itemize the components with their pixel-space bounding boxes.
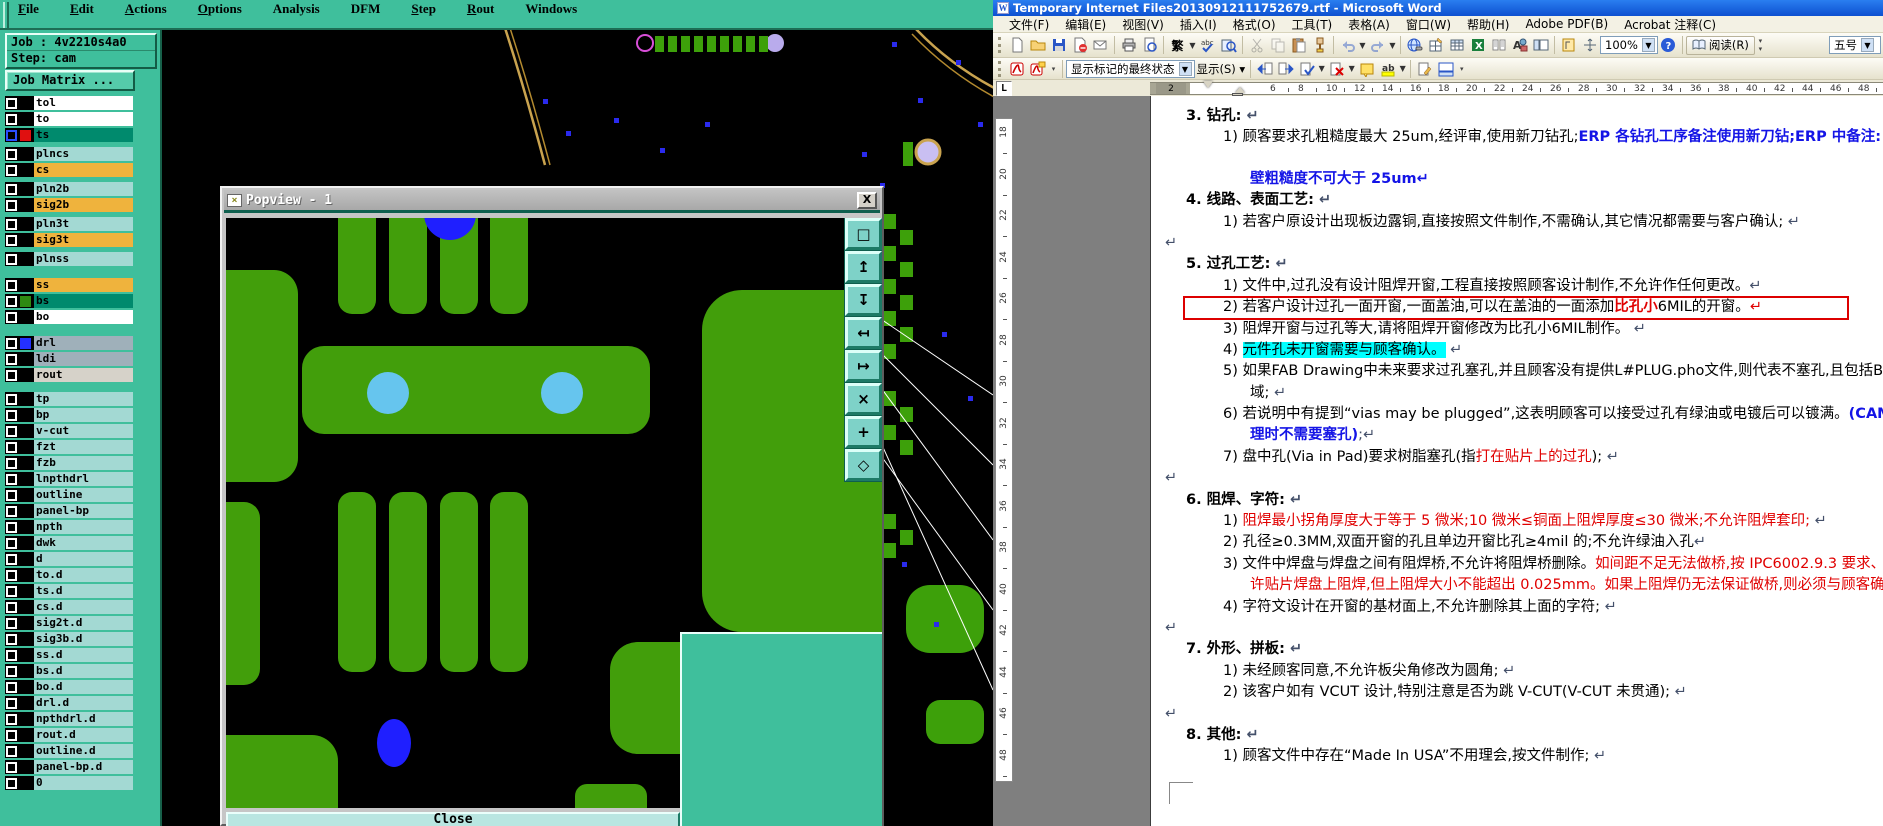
layer-name[interactable]: panel-bp.d bbox=[34, 760, 133, 774]
reviewing-pane-icon[interactable] bbox=[1435, 59, 1456, 79]
undo-icon[interactable] bbox=[1337, 35, 1358, 55]
layer-checkbox[interactable] bbox=[6, 570, 17, 581]
doc-text-run: 1) 顾客文件中存在“Made In USA”不用理会,按文件制作; bbox=[1223, 748, 1589, 764]
layer-row-rout.d[interactable]: rout.d bbox=[5, 728, 133, 742]
layer-row-bs[interactable]: bs bbox=[5, 294, 133, 308]
format-painter-icon[interactable] bbox=[1309, 35, 1330, 55]
layer-checkbox[interactable] bbox=[6, 200, 17, 211]
display-for-review-combobox[interactable]: 显示标记的最终状态▼ bbox=[1066, 60, 1195, 78]
layer-checkbox[interactable] bbox=[6, 354, 17, 365]
insert-comment-icon[interactable] bbox=[1356, 59, 1377, 79]
layer-name[interactable]: panel-bp bbox=[34, 504, 133, 518]
layer-checkbox[interactable] bbox=[6, 730, 17, 741]
layer-row-bs.d[interactable]: bs.d bbox=[5, 664, 133, 678]
layer-color-swatch[interactable] bbox=[20, 410, 31, 421]
ruler-number: 18 bbox=[999, 124, 1011, 140]
insert-table-icon[interactable] bbox=[1446, 35, 1467, 55]
layer-checkbox[interactable] bbox=[6, 682, 17, 693]
layer-checkbox[interactable] bbox=[6, 442, 17, 453]
menubar-grip[interactable] bbox=[3, 2, 9, 28]
layer-row-sig2t.d[interactable]: sig2t.d bbox=[5, 616, 133, 630]
font-size-dropdown-icon[interactable]: ▼ bbox=[1861, 38, 1874, 52]
layer-name[interactable]: ss.d bbox=[34, 648, 133, 662]
layer-checkbox[interactable] bbox=[6, 235, 17, 246]
layer-checkbox[interactable] bbox=[6, 714, 17, 725]
layer-name[interactable]: outline.d bbox=[34, 744, 133, 758]
word-menu-item[interactable]: 编辑(E) bbox=[1057, 16, 1114, 33]
doc-text-line: 理时不需要塞孔);↵ bbox=[1151, 425, 1883, 446]
cam-menu-rout[interactable]: Rout bbox=[465, 1, 496, 17]
layer-color-swatch[interactable] bbox=[20, 586, 31, 597]
layer-color-swatch[interactable] bbox=[20, 296, 31, 307]
print-preview-icon[interactable] bbox=[1139, 35, 1160, 55]
show-menu-button[interactable]: 显示(S) ▾ bbox=[1195, 61, 1248, 77]
layer-name[interactable]: d bbox=[34, 552, 133, 566]
paste-icon[interactable] bbox=[1288, 35, 1309, 55]
layer-checkbox[interactable] bbox=[6, 219, 17, 230]
layer-name[interactable]: bo bbox=[34, 310, 133, 324]
layer-color-swatch[interactable] bbox=[20, 778, 31, 789]
center-view-icon[interactable]: ◇ bbox=[845, 449, 882, 481]
layer-color-swatch[interactable] bbox=[20, 458, 31, 469]
layer-color-swatch[interactable] bbox=[20, 354, 31, 365]
layer-name[interactable]: tol bbox=[34, 96, 133, 110]
word-menu-item[interactable]: 表格(A) bbox=[1340, 16, 1398, 33]
layer-color-swatch[interactable] bbox=[20, 474, 31, 485]
layer-name[interactable]: ldi bbox=[34, 352, 133, 366]
layer-row-sig2b[interactable]: sig2b bbox=[5, 198, 133, 212]
layer-name[interactable]: dwk bbox=[34, 536, 133, 550]
cam-menu-file[interactable]: File bbox=[16, 1, 41, 17]
layer-name[interactable]: bp bbox=[34, 408, 133, 422]
layer-checkbox[interactable] bbox=[6, 506, 17, 517]
layer-color-swatch[interactable] bbox=[20, 698, 31, 709]
convert-to-pdf-email-icon[interactable] bbox=[1027, 59, 1048, 79]
doc-text-run: ↵ bbox=[1602, 449, 1619, 465]
layer-name[interactable]: bs bbox=[34, 294, 133, 308]
ruler-number: 36 bbox=[999, 498, 1011, 514]
layer-color-swatch[interactable] bbox=[20, 370, 31, 381]
layer-color-swatch[interactable] bbox=[20, 650, 31, 661]
ruler-number: 48 bbox=[1858, 83, 1869, 95]
doc-text-line: 4) 元件孔未开窗需要与顾客确认。 ↵ bbox=[1151, 340, 1883, 361]
popview-title: Popview - 1 bbox=[246, 193, 332, 208]
drawing-icon[interactable]: A bbox=[1509, 35, 1530, 55]
layer-row-0[interactable]: 0 bbox=[5, 776, 133, 790]
cam-menu-actions[interactable]: Actions bbox=[123, 1, 169, 17]
window-popout-icon[interactable]: □ bbox=[845, 218, 882, 250]
research-icon[interactable] bbox=[1218, 35, 1239, 55]
layer-name[interactable]: ss bbox=[34, 278, 133, 292]
accept-change-icon[interactable] bbox=[1296, 59, 1317, 79]
layer-color-swatch[interactable] bbox=[20, 149, 31, 160]
layer-checkbox[interactable] bbox=[6, 634, 17, 645]
layer-name[interactable]: outline bbox=[34, 488, 133, 502]
layer-row-ldi[interactable]: ldi bbox=[5, 352, 133, 366]
layer-checkbox[interactable] bbox=[6, 370, 17, 381]
cam-menu-edit[interactable]: Edit bbox=[68, 1, 96, 17]
document-area: 18202224262830323436384042444648 3. 钻孔: … bbox=[993, 96, 1883, 826]
layer-name[interactable]: tp bbox=[34, 392, 133, 406]
track-changes-icon[interactable] bbox=[1414, 59, 1435, 79]
layer-checkbox[interactable] bbox=[6, 650, 17, 661]
layer-color-swatch[interactable] bbox=[20, 280, 31, 291]
layer-checkbox[interactable] bbox=[6, 474, 17, 485]
layer-color-swatch[interactable] bbox=[20, 602, 31, 613]
layer-row-sig3t[interactable]: sig3t bbox=[5, 233, 133, 247]
toolbar-grip[interactable] bbox=[998, 37, 1003, 53]
layer-row-ts.d[interactable]: ts.d bbox=[5, 584, 133, 598]
layer-checkbox[interactable] bbox=[6, 165, 17, 176]
doc-heading-line: 3. 钻孔: ↵ bbox=[1151, 106, 1883, 127]
layer-row-npth[interactable]: npth bbox=[5, 520, 133, 534]
layer-name[interactable]: rout bbox=[34, 368, 133, 382]
first-line-indent-marker[interactable] bbox=[1203, 81, 1213, 88]
layer-checkbox[interactable] bbox=[6, 490, 17, 501]
show-hide-marks-icon[interactable] bbox=[1558, 35, 1579, 55]
layer-row-fzb[interactable]: fzb bbox=[5, 456, 133, 470]
layer-color-swatch[interactable] bbox=[20, 442, 31, 453]
layer-checkbox[interactable] bbox=[6, 280, 17, 291]
reject-change-dropdown-icon[interactable]: ▼ bbox=[1347, 64, 1356, 73]
layer-checkbox[interactable] bbox=[6, 184, 17, 195]
doc-text-run: 3) 文件中焊盘与焊盘之间有阻焊桥,不允许将阻焊桥删除。 bbox=[1223, 556, 1595, 572]
layer-checkbox[interactable] bbox=[6, 762, 17, 773]
layer-row-v-cut[interactable]: v-cut bbox=[5, 424, 133, 438]
cut-icon[interactable] bbox=[1246, 35, 1267, 55]
word-standard-toolbar: 繁 ▼ abc ▼ ▼ X A 100%▼ ? bbox=[993, 33, 1883, 58]
job-matrix-button[interactable]: Job Matrix ... bbox=[5, 70, 135, 91]
word-titlebar[interactable]: W Temporary Internet Files20130912111752… bbox=[993, 0, 1883, 16]
layer-color-swatch[interactable] bbox=[20, 254, 31, 265]
layer-color-swatch[interactable] bbox=[20, 235, 31, 246]
toolbar-options-icon[interactable]: ▾ bbox=[1456, 60, 1467, 78]
layer-color-swatch[interactable] bbox=[20, 490, 31, 501]
cam-menu-analysis[interactable]: Analysis bbox=[271, 1, 322, 17]
cam-menu-dfm[interactable]: DFM bbox=[349, 1, 383, 17]
layer-name[interactable]: bs.d bbox=[34, 664, 133, 678]
ruler-number: 6 bbox=[1270, 83, 1276, 95]
cam-menu-options[interactable]: Options bbox=[196, 1, 244, 17]
doc-text-run: 2) 该客户如有 VCUT 设计,特别注意是否为跳 V-CUT(V-CUT 未贯… bbox=[1223, 684, 1670, 700]
layer-name[interactable]: 0 bbox=[34, 776, 133, 790]
layer-color-swatch[interactable] bbox=[20, 506, 31, 517]
layer-checkbox[interactable] bbox=[6, 618, 17, 629]
toolbar-options-icon[interactable]: ▾▾ bbox=[1755, 36, 1766, 54]
pan-icon[interactable]: + bbox=[845, 416, 882, 448]
svg-text:?: ? bbox=[1666, 41, 1672, 52]
popview-side-panel bbox=[680, 632, 882, 826]
reading-mode-button[interactable]: 阅读(R) bbox=[1686, 36, 1755, 55]
layer-checkbox[interactable] bbox=[6, 746, 17, 757]
layer-row-panel-bp[interactable]: panel-bp bbox=[5, 504, 133, 518]
layer-checkbox[interactable] bbox=[6, 458, 17, 469]
layer-color-swatch[interactable] bbox=[20, 200, 31, 211]
toolbar-options-icon[interactable]: ▾ bbox=[1048, 60, 1059, 78]
word-menu-item[interactable]: 文件(F) bbox=[1001, 16, 1057, 33]
chinese-convert-icon[interactable]: 繁 bbox=[1167, 35, 1188, 55]
layer-checkbox[interactable] bbox=[6, 114, 17, 125]
print-icon[interactable] bbox=[1118, 35, 1139, 55]
layer-name[interactable]: sig3b.d bbox=[34, 632, 133, 646]
layer-checkbox[interactable] bbox=[6, 410, 17, 421]
layer-row-lnpthdrl[interactable]: lnpthdrl bbox=[5, 472, 133, 486]
job-label: Job : 4v2210s4a0 bbox=[7, 35, 155, 51]
layer-row-pln2b[interactable]: pln2b bbox=[5, 182, 133, 196]
doc-text-line: 许贴片焊盘上阻焊,但上阻焊大小不能超出 0.025mm。如果上阻焊仍无法保证做桥… bbox=[1151, 575, 1883, 596]
ruler-number: 22 bbox=[1494, 83, 1505, 95]
save-icon[interactable] bbox=[1048, 35, 1069, 55]
layer-checkbox[interactable] bbox=[6, 149, 17, 160]
layer-row-bp[interactable]: bp bbox=[5, 408, 133, 422]
layer-checkbox[interactable] bbox=[6, 394, 17, 405]
layer-name[interactable]: sig2b bbox=[34, 198, 133, 212]
tab-selector[interactable]: L bbox=[996, 81, 1012, 96]
font-size-value: 五号 bbox=[1834, 37, 1857, 53]
spelling-icon[interactable]: abc bbox=[1197, 35, 1218, 55]
zoom-dropdown-icon[interactable]: ▼ bbox=[1642, 38, 1655, 52]
columns-icon[interactable] bbox=[1488, 35, 1509, 55]
layer-row-plnss[interactable]: plnss bbox=[5, 252, 133, 266]
zoom-fit-icon[interactable] bbox=[1579, 35, 1600, 55]
layer-name[interactable]: ts bbox=[34, 128, 133, 142]
popview-close-button[interactable]: Close bbox=[226, 812, 680, 826]
flip-up-icon[interactable]: ↥ bbox=[845, 251, 882, 283]
cam-menu-step[interactable]: Step bbox=[409, 1, 438, 17]
document-page[interactable]: 3. 钻孔: ↵1) 顾客要求孔粗糙度最大 25um,经评审,使用新刀钻孔;ER… bbox=[1150, 96, 1883, 826]
layer-name[interactable]: fzt bbox=[34, 440, 133, 454]
layer-color-swatch[interactable] bbox=[20, 634, 31, 645]
layer-row-drl.d[interactable]: drl.d bbox=[5, 696, 133, 710]
layer-row-sig3b.d[interactable]: sig3b.d bbox=[5, 632, 133, 646]
word-menu-item[interactable]: Acrobat 注释(C) bbox=[1616, 16, 1724, 33]
layer-color-swatch[interactable] bbox=[20, 98, 31, 109]
layer-color-swatch[interactable] bbox=[20, 165, 31, 176]
layer-name[interactable]: ts.d bbox=[34, 584, 133, 598]
layer-checkbox[interactable] bbox=[6, 522, 17, 533]
layer-row-ss.d[interactable]: ss.d bbox=[5, 648, 133, 662]
permission-icon[interactable] bbox=[1069, 35, 1090, 55]
layer-checkbox[interactable] bbox=[6, 296, 17, 307]
layer-name[interactable]: rout.d bbox=[34, 728, 133, 742]
doc-text-run: 7. 外形、拼板: bbox=[1186, 641, 1285, 657]
word-application-window: W Temporary Internet Files20130912111752… bbox=[993, 0, 1883, 826]
accept-change-dropdown-icon[interactable]: ▼ bbox=[1317, 64, 1326, 73]
layer-checkbox[interactable] bbox=[6, 312, 17, 323]
layer-checkbox[interactable] bbox=[6, 554, 17, 565]
layer-name[interactable]: pln2b bbox=[34, 182, 133, 196]
layer-color-swatch[interactable] bbox=[20, 570, 31, 581]
layer-row-outline[interactable]: outline bbox=[5, 488, 133, 502]
layer-row-npthdrl.d[interactable]: npthdrl.d bbox=[5, 712, 133, 726]
help-icon[interactable]: ? bbox=[1658, 35, 1679, 55]
doc-text-run: 7) 盘中孔(Via in Pad)要求树脂塞孔(指 bbox=[1223, 449, 1476, 465]
zoom-combobox[interactable]: 100%▼ bbox=[1600, 36, 1658, 54]
layer-name[interactable]: bo.d bbox=[34, 680, 133, 694]
popview-close-icon[interactable]: X bbox=[857, 192, 877, 209]
layer-name[interactable]: plncs bbox=[34, 147, 133, 161]
layer-color-swatch[interactable] bbox=[20, 219, 31, 230]
layer-row-drl[interactable]: drl bbox=[5, 336, 133, 350]
layer-name[interactable]: sig2t.d bbox=[34, 616, 133, 630]
popview-window-icon: × bbox=[227, 194, 242, 207]
highlight-dropdown-icon[interactable]: ▼ bbox=[1398, 64, 1407, 73]
document-map-icon[interactable] bbox=[1530, 35, 1551, 55]
email-icon[interactable] bbox=[1090, 35, 1111, 55]
flip-right-icon[interactable]: ↦ bbox=[845, 350, 882, 382]
layer-color-swatch[interactable] bbox=[20, 184, 31, 195]
layer-color-swatch[interactable] bbox=[20, 538, 31, 549]
markup-dropdown-icon[interactable]: ▼ bbox=[1179, 62, 1192, 76]
word-menu-item[interactable]: Adobe PDF(B) bbox=[1517, 17, 1616, 31]
layer-checkbox[interactable] bbox=[6, 538, 17, 549]
tables-borders-icon[interactable] bbox=[1425, 35, 1446, 55]
cam-menu-windows[interactable]: Windows bbox=[523, 1, 579, 17]
previous-change-icon[interactable] bbox=[1254, 59, 1275, 79]
ruler-number: 34 bbox=[999, 456, 1011, 472]
reject-change-icon[interactable] bbox=[1326, 59, 1347, 79]
layer-row-rout[interactable]: rout bbox=[5, 368, 133, 382]
layer-color-swatch[interactable] bbox=[20, 522, 31, 533]
layer-name[interactable]: to bbox=[34, 112, 133, 126]
doc-text-run: 1) 未经顾客同意,不允许板尖角修改为圆角; bbox=[1223, 663, 1498, 679]
layer-color-swatch[interactable] bbox=[20, 312, 31, 323]
layer-checkbox[interactable] bbox=[6, 698, 17, 709]
doc-text-run: 1) 若客户原设计出现板边露铜,直接按照文件制作,不需确认,其它情况都需要与客户… bbox=[1223, 214, 1783, 230]
open-icon[interactable] bbox=[1027, 35, 1048, 55]
layer-checkbox[interactable] bbox=[6, 130, 17, 141]
layer-row-fzt[interactable]: fzt bbox=[5, 440, 133, 454]
doc-text-run: ↵ bbox=[1241, 108, 1258, 124]
layer-row-d[interactable]: d bbox=[5, 552, 133, 566]
hyperlink-icon[interactable] bbox=[1404, 35, 1425, 55]
ruler-number: 36 bbox=[1690, 83, 1701, 95]
ruler-number: 30 bbox=[1606, 83, 1617, 95]
layer-name[interactable]: cs.d bbox=[34, 600, 133, 614]
word-menu-item[interactable]: 窗口(W) bbox=[1398, 16, 1459, 33]
layer-color-swatch[interactable] bbox=[20, 714, 31, 725]
popview-titlebar[interactable]: × Popview - 1 X bbox=[224, 190, 880, 213]
layer-row-pln3t[interactable]: pln3t bbox=[5, 217, 133, 231]
layer-checkbox[interactable] bbox=[6, 602, 17, 613]
font-size-combobox[interactable]: 五号▼ bbox=[1829, 36, 1881, 54]
layer-row-cs.d[interactable]: cs.d bbox=[5, 600, 133, 614]
doc-heading-line: 6. 阻焊、字符: ↵ bbox=[1151, 490, 1883, 511]
layer-checkbox[interactable] bbox=[6, 666, 17, 677]
ruler-number: 26 bbox=[999, 290, 1011, 306]
layer-row-plncs[interactable]: plncs bbox=[5, 147, 133, 161]
layer-name[interactable]: lnpthdrl bbox=[34, 472, 133, 486]
layer-name[interactable]: pln3t bbox=[34, 217, 133, 231]
layer-color-swatch[interactable] bbox=[20, 618, 31, 629]
layer-row-tol[interactable]: tol bbox=[5, 96, 133, 110]
layer-row-ts[interactable]: ts bbox=[5, 128, 133, 142]
doc-empty-line: ↵ bbox=[1151, 233, 1883, 254]
doc-text-run: ↵ bbox=[1165, 620, 1177, 636]
layer-color-swatch[interactable] bbox=[20, 682, 31, 693]
copy-icon[interactable] bbox=[1267, 35, 1288, 55]
ruler-number: 34 bbox=[1662, 83, 1673, 95]
doc-text-run: ↵ bbox=[1589, 748, 1606, 764]
redo-dropdown-icon[interactable]: ▼ bbox=[1388, 41, 1397, 50]
layer-name[interactable]: drl.d bbox=[34, 696, 133, 710]
layer-name[interactable]: sig3t bbox=[34, 233, 133, 247]
undo-dropdown-icon[interactable]: ▼ bbox=[1358, 41, 1367, 50]
highlight-icon[interactable]: ab bbox=[1377, 59, 1398, 79]
layer-row-to[interactable]: to bbox=[5, 112, 133, 126]
doc-text-line: 3) 阻焊开窗与过孔等大,请将阻焊开窗修改为比孔小6MIL制作。 ↵ bbox=[1151, 319, 1883, 340]
doc-text-run: ↵ bbox=[1694, 534, 1706, 550]
layer-color-swatch[interactable] bbox=[20, 114, 31, 125]
layer-row-bo.d[interactable]: bo.d bbox=[5, 680, 133, 694]
layer-checkbox[interactable] bbox=[6, 338, 17, 349]
layer-color-swatch[interactable] bbox=[20, 554, 31, 565]
layer-color-swatch[interactable] bbox=[20, 666, 31, 677]
ruler-number: 46 bbox=[1830, 83, 1841, 95]
word-menu-item[interactable]: 插入(I) bbox=[1172, 16, 1225, 33]
insert-excel-icon[interactable]: X bbox=[1467, 35, 1488, 55]
layer-checkbox[interactable] bbox=[6, 586, 17, 597]
layer-row-to.d[interactable]: to.d bbox=[5, 568, 133, 582]
layer-color-swatch[interactable] bbox=[20, 426, 31, 437]
doc-text-run: 比孔小 bbox=[1614, 299, 1658, 315]
layer-color-swatch[interactable] bbox=[20, 394, 31, 405]
layer-name[interactable]: to.d bbox=[34, 568, 133, 582]
convert-to-pdf-icon[interactable] bbox=[1006, 59, 1027, 79]
word-menu-item[interactable]: 视图(V) bbox=[1114, 16, 1172, 33]
layer-name[interactable]: v-cut bbox=[34, 424, 133, 438]
new-document-icon[interactable] bbox=[1006, 35, 1027, 55]
chinese-convert-dropdown-icon[interactable]: ▼ bbox=[1188, 41, 1197, 50]
doc-text-run: 打在贴片上的过孔 bbox=[1476, 449, 1592, 465]
redo-ic on[interactable] bbox=[1367, 35, 1388, 55]
zoom-fit-icon[interactable]: × bbox=[845, 383, 882, 415]
layer-color-swatch[interactable] bbox=[20, 762, 31, 773]
word-menu-item[interactable]: 工具(T) bbox=[1284, 16, 1341, 33]
layer-color-swatch[interactable] bbox=[20, 130, 31, 141]
layer-name[interactable]: npth bbox=[34, 520, 133, 534]
layer-checkbox[interactable] bbox=[6, 98, 17, 109]
next-change-icon[interactable] bbox=[1275, 59, 1296, 79]
flip-left-icon[interactable]: ↤ bbox=[845, 317, 882, 349]
show-label: 显示(S) bbox=[1197, 62, 1236, 76]
layer-checkbox[interactable] bbox=[6, 778, 17, 789]
word-menu-item[interactable]: 格式(O) bbox=[1225, 16, 1284, 33]
layer-checkbox[interactable] bbox=[6, 254, 17, 265]
layer-row-ss[interactable]: ss bbox=[5, 278, 133, 292]
layer-name[interactable]: plnss bbox=[34, 252, 133, 266]
toolbar-grip[interactable] bbox=[998, 61, 1003, 77]
layer-name[interactable]: npthdrl.d bbox=[34, 712, 133, 726]
layer-row-bo[interactable]: bo bbox=[5, 310, 133, 324]
word-menu-item[interactable]: 帮助(H) bbox=[1459, 16, 1517, 33]
layer-name[interactable]: drl bbox=[34, 336, 133, 350]
layer-color-swatch[interactable] bbox=[20, 730, 31, 741]
layer-row-outline.d[interactable]: outline.d bbox=[5, 744, 133, 758]
layer-row-panel-bp.d[interactable]: panel-bp.d bbox=[5, 760, 133, 774]
layer-name[interactable]: cs bbox=[34, 163, 133, 177]
layer-color-swatch[interactable] bbox=[20, 746, 31, 757]
layer-checkbox[interactable] bbox=[6, 426, 17, 437]
ruler-number: 28 bbox=[999, 332, 1011, 348]
doc-text-run: ↵ bbox=[1670, 684, 1687, 700]
layer-name[interactable]: fzb bbox=[34, 456, 133, 470]
layer-row-dwk[interactable]: dwk bbox=[5, 536, 133, 550]
flip-down-icon[interactable]: ↧ bbox=[845, 284, 882, 316]
layer-row-cs[interactable]: cs bbox=[5, 163, 133, 177]
layer-color-swatch[interactable] bbox=[20, 338, 31, 349]
layer-row-tp[interactable]: tp bbox=[5, 392, 133, 406]
